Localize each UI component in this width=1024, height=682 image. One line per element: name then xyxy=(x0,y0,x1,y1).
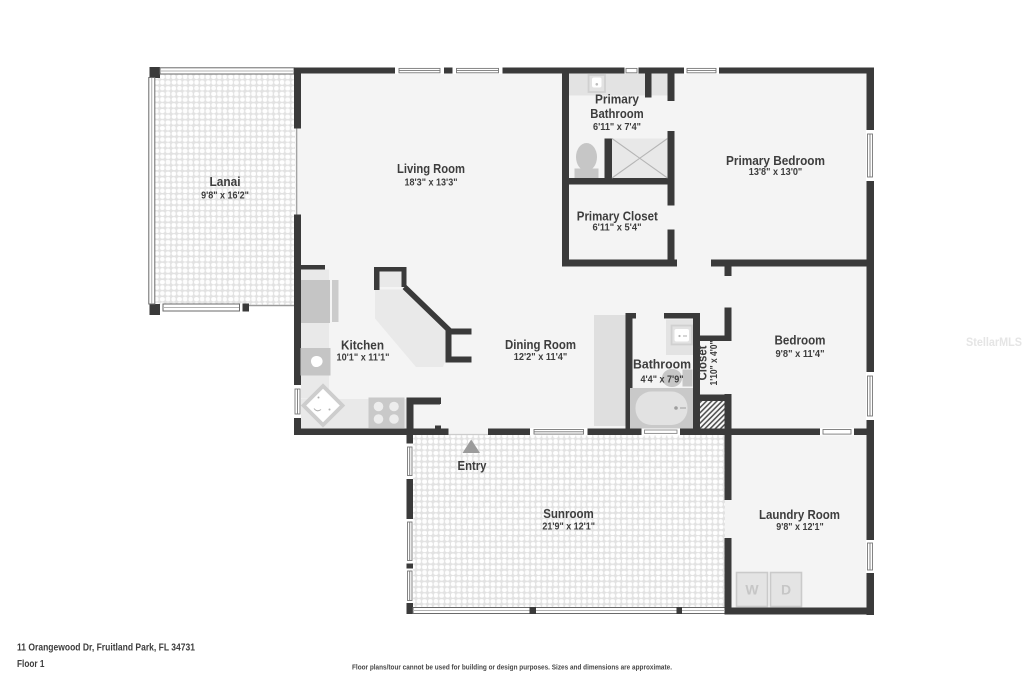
svg-text:Primary Bedroom: Primary Bedroom xyxy=(726,153,825,168)
svg-text:Bedroom: Bedroom xyxy=(775,332,826,347)
svg-text:Bathroom: Bathroom xyxy=(633,356,691,371)
svg-text:6'11" x 5'4": 6'11" x 5'4" xyxy=(593,223,642,234)
svg-text:StellarMLS: StellarMLS xyxy=(966,337,1022,349)
svg-text:9'8" x 12'1": 9'8" x 12'1" xyxy=(776,522,824,533)
svg-text:13'8" x 13'0": 13'8" x 13'0" xyxy=(749,167,803,178)
svg-text:1'10" x 4'0": 1'10" x 4'0" xyxy=(709,340,720,385)
svg-text:Kitchen: Kitchen xyxy=(341,338,384,353)
svg-text:10'1" x 11'1": 10'1" x 11'1" xyxy=(337,352,390,363)
svg-text:Entry: Entry xyxy=(458,458,488,473)
svg-text:11 Orangewood Dr, Fruitland Pa: 11 Orangewood Dr, Fruitland Park, FL 347… xyxy=(17,643,195,654)
svg-text:D: D xyxy=(781,582,791,598)
svg-text:4'4" x 7'9": 4'4" x 7'9" xyxy=(641,375,684,386)
svg-text:21'9" x 12'1": 21'9" x 12'1" xyxy=(542,522,595,533)
svg-text:Primary: Primary xyxy=(595,92,640,107)
svg-text:9'8" x 16'2": 9'8" x 16'2" xyxy=(201,191,249,202)
svg-text:Laundry Room: Laundry Room xyxy=(759,507,840,522)
svg-text:W: W xyxy=(745,582,759,598)
svg-text:Floor 1: Floor 1 xyxy=(17,659,45,670)
svg-text:Bathroom: Bathroom xyxy=(590,106,643,121)
svg-text:Lanai: Lanai xyxy=(210,174,241,189)
svg-text:Dining Room: Dining Room xyxy=(505,337,576,352)
svg-text:Living Room: Living Room xyxy=(397,161,465,176)
svg-text:6'11" x 7'4": 6'11" x 7'4" xyxy=(593,122,641,133)
svg-text:18'3" x 13'3": 18'3" x 13'3" xyxy=(405,178,458,189)
svg-text:Primary Closet: Primary Closet xyxy=(577,208,659,223)
svg-text:12'2" x 11'4": 12'2" x 11'4" xyxy=(514,352,568,363)
svg-text:Floor plans/tour cannot be use: Floor plans/tour cannot be used for buil… xyxy=(352,663,672,672)
svg-text:Sunroom: Sunroom xyxy=(543,506,594,521)
svg-text:Closet: Closet xyxy=(695,345,710,381)
svg-text:9'8" x 11'4": 9'8" x 11'4" xyxy=(776,349,825,360)
